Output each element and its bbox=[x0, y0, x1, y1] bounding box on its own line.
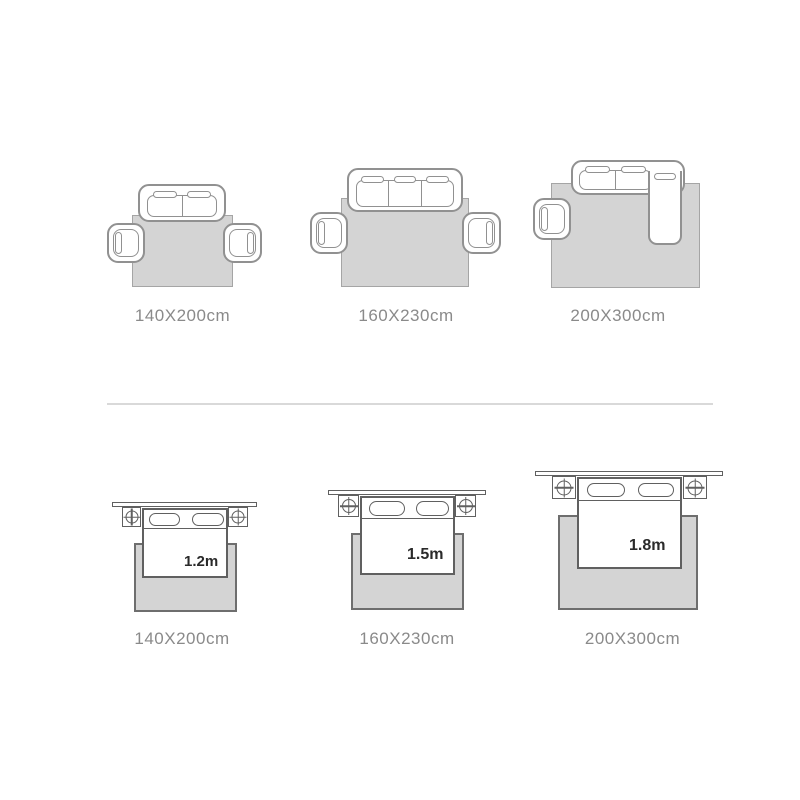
sofa-back-cushion bbox=[654, 173, 677, 180]
armchair-back-cushion bbox=[115, 232, 122, 254]
bed-top-view: 1.8m bbox=[577, 477, 682, 569]
pillow bbox=[149, 513, 180, 526]
rug-size-label: 160X230cm bbox=[308, 306, 504, 326]
sofa-seat-section bbox=[357, 181, 388, 206]
bed-rug-figure-140x200: 1.2m 140X200cm bbox=[102, 495, 262, 655]
rug-size-guide: 140X200cm 160X230cm bbox=[0, 0, 800, 800]
sofa-back-cushion bbox=[585, 166, 610, 173]
pillow bbox=[638, 483, 674, 497]
pillow-row bbox=[144, 510, 226, 529]
lamp-icon bbox=[459, 499, 473, 513]
nightstand-right bbox=[228, 507, 248, 527]
rug-size-label: 160X230cm bbox=[327, 629, 487, 649]
rug bbox=[132, 215, 233, 287]
nightstand-left bbox=[338, 495, 359, 517]
sofa-back-cushion bbox=[394, 176, 417, 183]
nightstand-left bbox=[122, 507, 141, 527]
lamp-icon bbox=[557, 480, 572, 495]
sofa-chaise bbox=[648, 171, 682, 245]
sofa-seat-area bbox=[356, 180, 454, 207]
nightstand-right bbox=[455, 495, 476, 517]
divider-line bbox=[107, 403, 713, 405]
bed-width-label: 1.8m bbox=[629, 537, 665, 555]
sofa-rug-figure-160x230: 160X230cm bbox=[308, 165, 504, 330]
pillow-row bbox=[579, 479, 680, 501]
bed-top-view: 1.2m bbox=[142, 508, 228, 578]
armchair-right bbox=[223, 223, 262, 263]
lamp-icon bbox=[125, 511, 138, 524]
armchair-right bbox=[462, 212, 501, 254]
sofa-top-view bbox=[138, 184, 226, 222]
rug-size-label: 140X200cm bbox=[100, 306, 265, 326]
bed-width-label: 1.2m bbox=[184, 553, 218, 570]
sectional-sofa-rug-figure-200x300: 200X300cm bbox=[528, 158, 708, 328]
sofa-seat-section bbox=[182, 196, 217, 216]
bed-width-label: 1.5m bbox=[407, 546, 443, 564]
rug-size-label: 140X200cm bbox=[102, 629, 262, 649]
armchair-left bbox=[533, 198, 571, 240]
sofa-back-cushion bbox=[153, 191, 177, 198]
bed-rug-figure-160x230: 1.5m 160X230cm bbox=[327, 483, 487, 653]
armchair-left bbox=[107, 223, 145, 263]
bed-rug-figure-200x300: 1.8m 200X300cm bbox=[535, 465, 730, 655]
sofa-seat-area bbox=[147, 195, 217, 217]
lamp-icon bbox=[232, 511, 245, 524]
nightstand-right bbox=[683, 476, 707, 499]
rug-size-label: 200X300cm bbox=[535, 629, 730, 649]
armchair-back-cushion bbox=[486, 221, 493, 245]
sofa-back-cushion bbox=[187, 191, 211, 198]
pillow bbox=[192, 513, 224, 526]
lamp-icon bbox=[688, 480, 703, 495]
pillow bbox=[369, 501, 405, 516]
sofa-seat-section bbox=[388, 181, 420, 206]
bed-top-view: 1.5m bbox=[360, 496, 455, 575]
sofa-back-cushion bbox=[426, 176, 449, 183]
pillow bbox=[416, 501, 449, 516]
rug-size-label: 200X300cm bbox=[528, 306, 708, 326]
armchair-back-cushion bbox=[541, 207, 548, 231]
pillow-row bbox=[362, 498, 453, 519]
armchair-left bbox=[310, 212, 348, 254]
pillow bbox=[587, 483, 625, 497]
sofa-back-cushion bbox=[361, 176, 384, 183]
sofa-top-view bbox=[347, 168, 463, 212]
armchair-back-cushion bbox=[247, 232, 254, 254]
sofa-seat-section bbox=[421, 181, 453, 206]
sofa-seat-section bbox=[580, 171, 615, 189]
sofa-seat-section bbox=[615, 171, 651, 189]
sofa-rug-figure-140x200: 140X200cm bbox=[100, 180, 265, 330]
armchair-back-cushion bbox=[318, 221, 325, 245]
sofa-seat-area bbox=[579, 170, 652, 190]
lamp-icon bbox=[342, 499, 356, 513]
nightstand-left bbox=[552, 476, 576, 499]
sofa-back-cushion bbox=[621, 166, 646, 173]
sofa-seat-section bbox=[148, 196, 182, 216]
